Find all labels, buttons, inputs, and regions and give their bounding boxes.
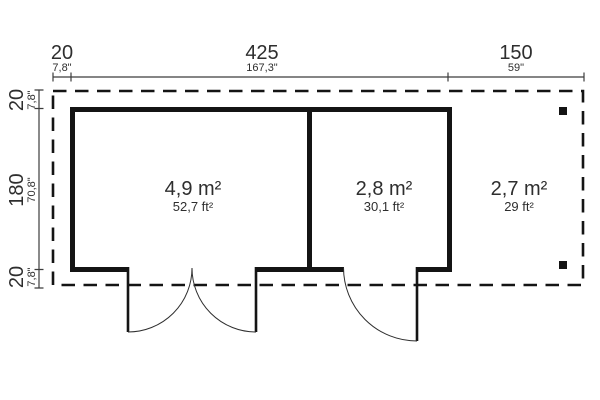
- room-2-area-m2: 2,8 m²: [356, 180, 413, 199]
- terrace-area-ft2: 29 ft²: [491, 199, 548, 214]
- dim-top-150: 150 59": [499, 44, 532, 74]
- dim-left-20-bottom-inch: 7,8": [27, 266, 38, 288]
- terrace-label: 2,7 m² 29 ft²: [491, 180, 548, 214]
- terrace-post-bottom: [559, 261, 567, 269]
- single-door: [344, 267, 418, 341]
- terrace-area-m2: 2,7 m²: [491, 180, 548, 199]
- dim-left-180-inch: 70,8": [27, 173, 38, 206]
- dim-top-150-cm: 150: [499, 44, 532, 63]
- double-door-left-swing-arc: [128, 268, 192, 332]
- dim-top-150-inch: 59": [499, 63, 532, 74]
- room-1-area-m2: 4,9 m²: [165, 180, 222, 199]
- room-2-area-ft2: 30,1 ft²: [356, 199, 413, 214]
- dim-top-20-cm: 20: [51, 44, 73, 63]
- dim-left-20-bottom: 20 7,8": [8, 266, 38, 288]
- double-door-right-swing-arc: [192, 268, 256, 332]
- dim-left-180: 180 70,8": [8, 173, 38, 206]
- dim-left-20-bottom-cm: 20: [8, 266, 27, 288]
- dim-left-20-top-inch: 7,8": [27, 89, 38, 111]
- dim-top-20-inch: 7,8": [51, 63, 73, 74]
- terrace-post-top: [559, 107, 567, 115]
- room-2-label: 2,8 m² 30,1 ft²: [356, 180, 413, 214]
- dim-left-20-top-cm: 20: [8, 89, 27, 111]
- room-1-area-ft2: 52,7 ft²: [165, 199, 222, 214]
- dim-left-20-top: 20 7,8": [8, 89, 38, 111]
- dim-top-20: 20 7,8": [51, 44, 73, 74]
- dim-left-180-cm: 180: [8, 173, 27, 206]
- dim-top-425: 425 167,3": [245, 44, 278, 74]
- double-door: [128, 267, 256, 332]
- floor-plan-canvas: 20 7,8" 425 167,3" 150 59" 20 7,8" 180 7…: [0, 0, 600, 400]
- dim-top-425-cm: 425: [245, 44, 278, 63]
- dim-top-425-inch: 167,3": [245, 63, 278, 74]
- single-door-swing-arc: [344, 268, 418, 342]
- room-1-label: 4,9 m² 52,7 ft²: [165, 180, 222, 214]
